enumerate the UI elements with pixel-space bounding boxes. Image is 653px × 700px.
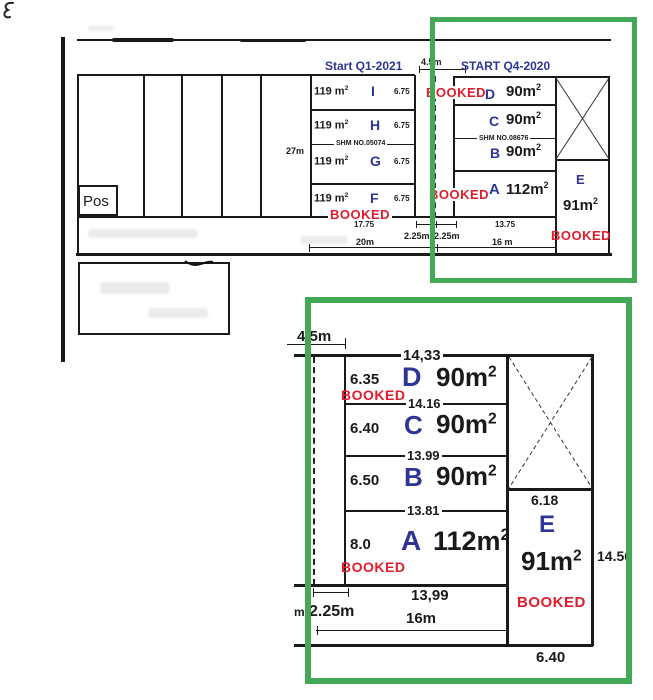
depth-27m-label: 27m xyxy=(286,147,304,156)
unit-i-letter: I xyxy=(371,84,375,98)
left-section-right-wall xyxy=(310,74,312,218)
site-top-border-smear xyxy=(112,38,174,42)
unit-g-area: 119 m2 xyxy=(314,156,348,168)
dim-tick xyxy=(419,66,420,73)
detail-stray-m: m xyxy=(294,606,305,618)
row-divider xyxy=(310,183,416,185)
unit-g-letter: G xyxy=(370,154,381,168)
dim-20m: 20m xyxy=(356,238,374,247)
unit-h-letter: H xyxy=(370,118,380,132)
building-left-line xyxy=(77,74,79,255)
pos-label: Pos xyxy=(83,194,109,209)
smudge xyxy=(300,236,348,244)
unit-f-letter: F xyxy=(370,191,379,205)
start-q1-label: Start Q1-2021 xyxy=(325,60,402,72)
mid-block-right-wall xyxy=(414,75,416,217)
site-top-border-smear xyxy=(240,39,306,42)
building-top-line xyxy=(77,74,415,76)
wall-divider xyxy=(260,74,262,218)
smudge xyxy=(88,229,198,238)
shm-05074-label: SHM NO.05074 xyxy=(334,140,387,147)
dim-17-75: 17.75 xyxy=(354,221,374,229)
dim-tick xyxy=(309,244,310,252)
wall-divider xyxy=(181,74,183,218)
row-divider xyxy=(310,109,416,111)
unit-i-area: 119 m2 xyxy=(314,86,348,98)
dim-tick xyxy=(416,221,417,228)
pen-mark xyxy=(1,1,19,23)
smudge xyxy=(88,26,114,31)
wall-divider xyxy=(221,74,223,218)
site-left-border xyxy=(61,37,65,362)
dim-2-25m-left: 2.25m xyxy=(404,232,430,241)
annex-notch xyxy=(185,259,213,267)
unit-h-area: 119 m2 xyxy=(314,120,348,132)
floor-plan-image: Pos 27m 119 m2 I 6.75 119 m2 H 6.75 SHM … xyxy=(0,0,653,700)
unit-i-depth: 6.75 xyxy=(394,88,410,96)
unit-h-depth: 6.75 xyxy=(394,122,410,130)
unit-f-depth: 6.75 xyxy=(394,195,410,203)
green-highlight-overview xyxy=(430,17,637,283)
unit-g-depth: 6.75 xyxy=(394,158,410,166)
unit-f-area: 119 m2 xyxy=(314,193,348,205)
wall-divider xyxy=(143,74,145,218)
green-highlight-detail xyxy=(305,297,632,684)
annex-rectangle xyxy=(78,262,230,335)
